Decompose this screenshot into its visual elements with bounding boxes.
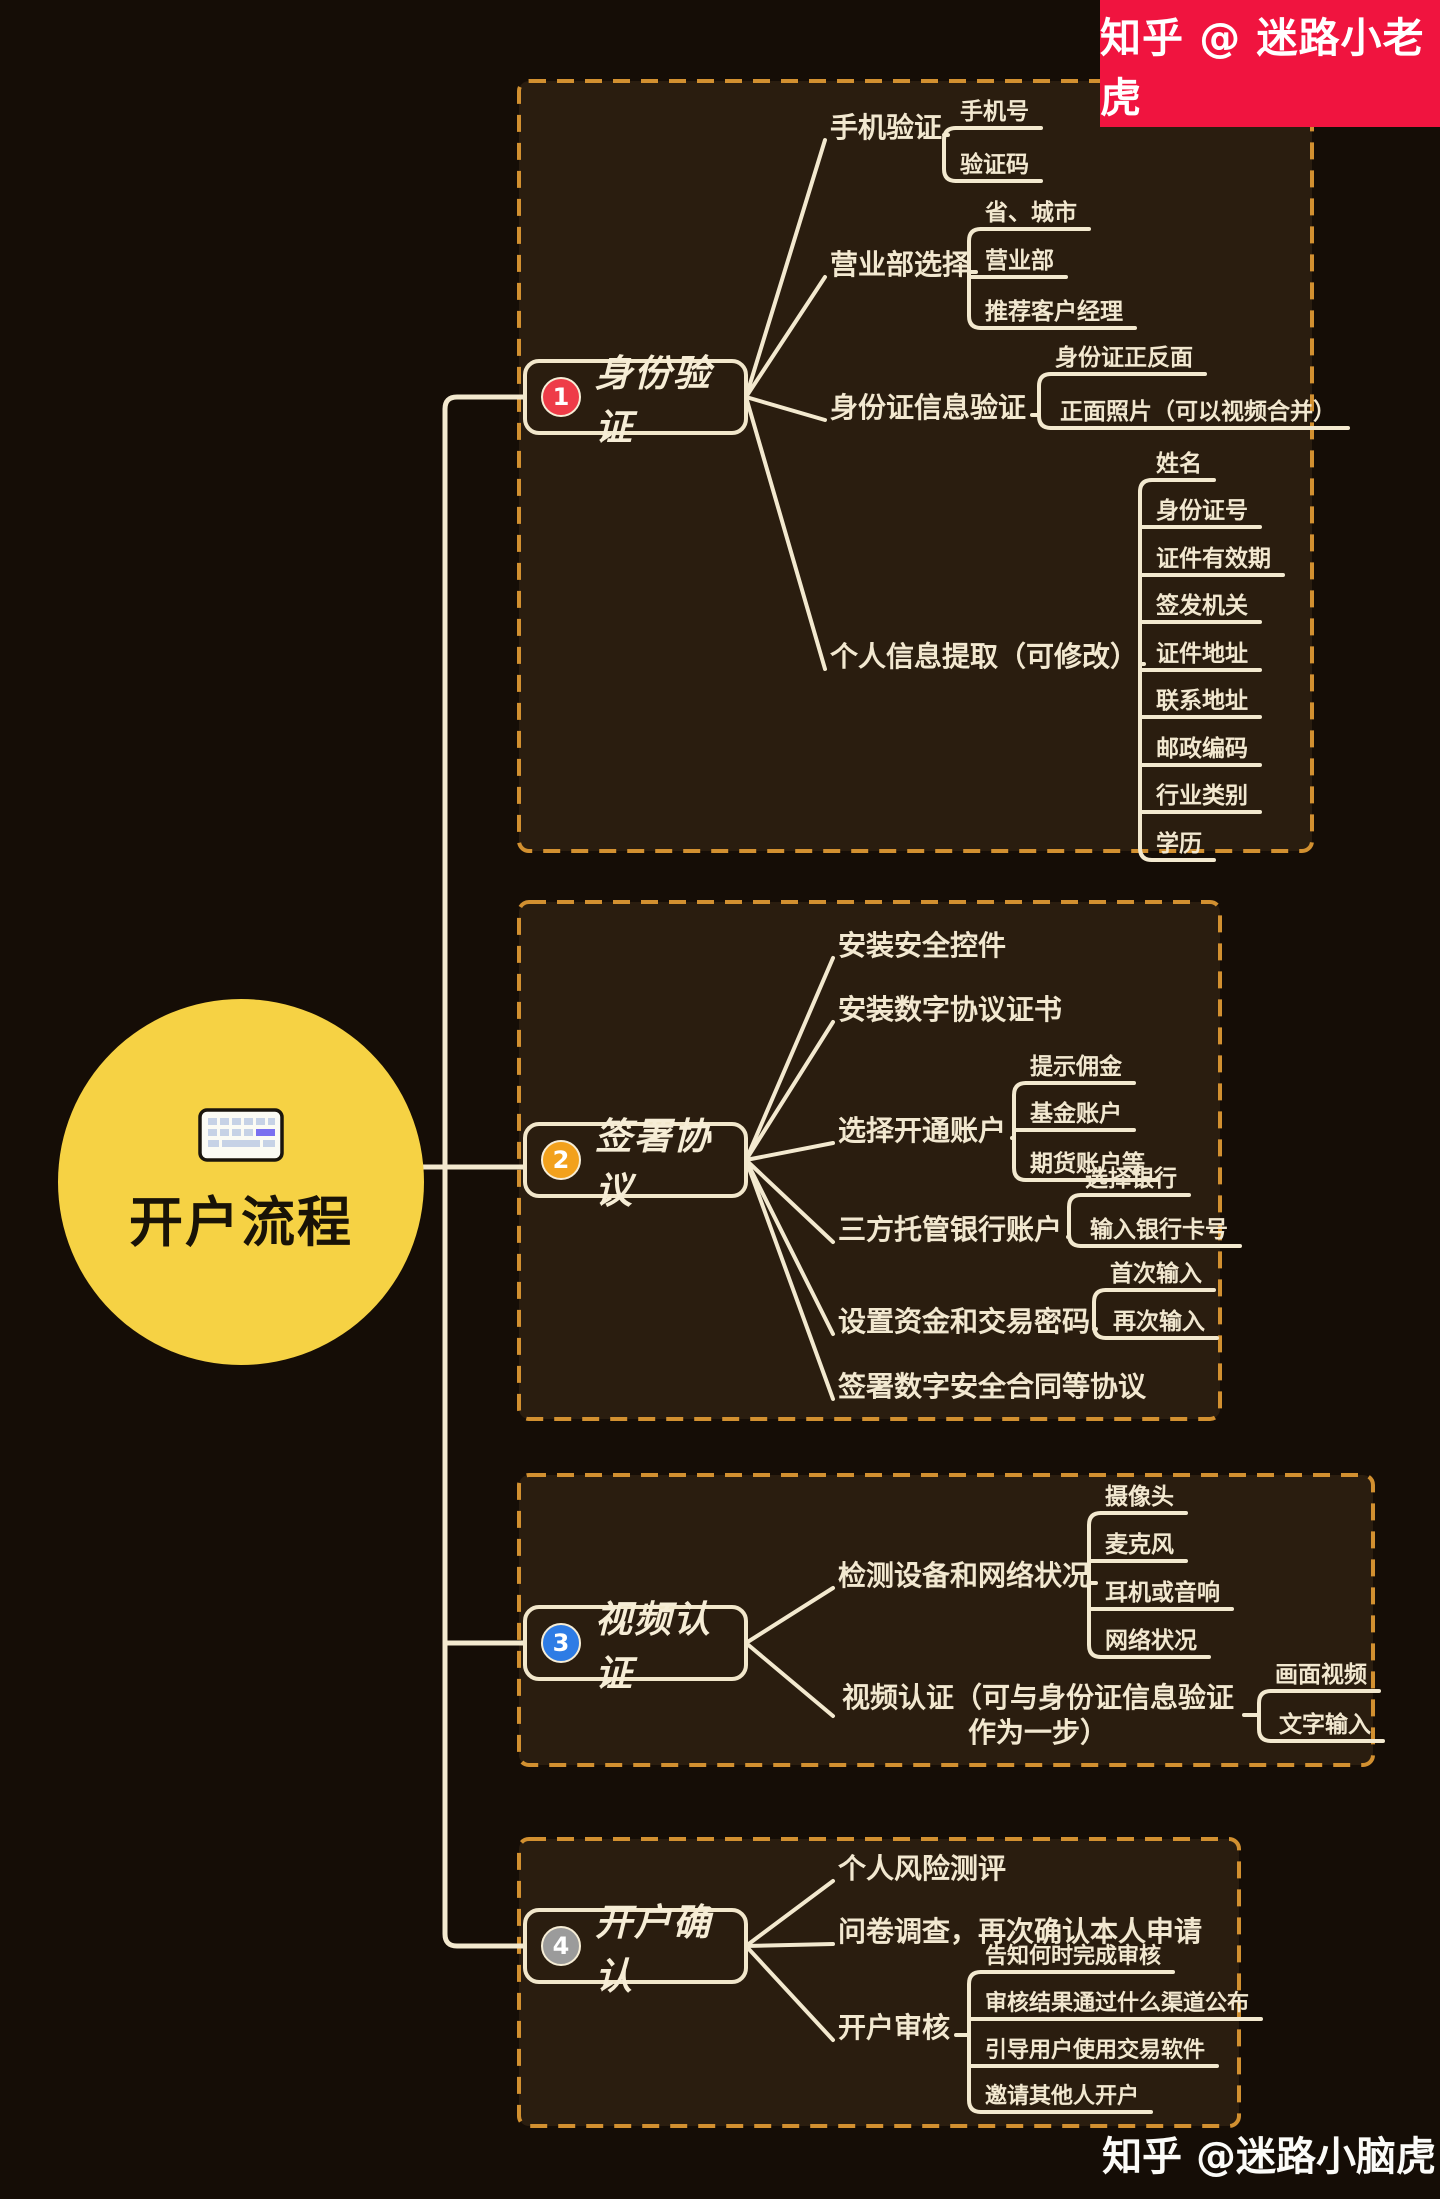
leaf-label: 行业类别 <box>1156 783 1248 809</box>
zhihu-watermark-banner: 知乎 @ 迷路小老虎 <box>1100 0 1440 127</box>
branch-number-badge: 4 <box>541 1926 581 1966</box>
branch-number-badge: 3 <box>541 1623 581 1663</box>
leaf-label: 签发机关 <box>1156 593 1248 619</box>
branch-node-2: 2 签署协议 <box>523 1122 748 1198</box>
leaf-label: 邮政编码 <box>1156 736 1248 762</box>
subtopic-label: 签署数字安全合同等协议 <box>838 1371 1146 1403</box>
subtopic-label: 检测设备和网络状况 <box>838 1560 1090 1592</box>
leaf-label: 网络状况 <box>1105 1628 1197 1654</box>
branch-number-badge: 1 <box>541 377 581 417</box>
leaf-label: 提示佣金 <box>1030 1054 1122 1080</box>
subtopic-label: 安装数字协议证书 <box>838 994 1062 1026</box>
leaf-label: 画面视频 <box>1275 1662 1367 1688</box>
subtopic-label: 选择开通账户 <box>838 1115 1006 1147</box>
subtopic-label: 视频认证（可与身份证信息验证作为一步） <box>838 1680 1238 1750</box>
subtopic-label: 个人风险测评 <box>838 1853 1006 1885</box>
leaf-label: 耳机或音响 <box>1105 1580 1220 1606</box>
leaf-label: 审核结果通过什么渠道公布 <box>985 1991 1249 2016</box>
leaf-label: 身份证正反面 <box>1055 345 1193 371</box>
leaf-label: 邀请其他人开户 <box>985 2084 1139 2109</box>
subtopic-label: 安装安全控件 <box>838 930 1006 962</box>
keyboard-icon <box>198 1108 284 1162</box>
leaf-label: 省、城市 <box>985 200 1077 226</box>
branch-number-badge: 2 <box>541 1140 581 1180</box>
leaf-label: 再次输入 <box>1113 1309 1205 1335</box>
leaf-label: 证件有效期 <box>1156 546 1271 572</box>
central-title: 开户流程 <box>129 1178 353 1257</box>
leaf-label: 输入银行卡号 <box>1090 1217 1228 1243</box>
subtopic-label: 三方托管银行账户 <box>838 1214 1062 1246</box>
branch-title: 签署协议 <box>595 1106 744 1214</box>
purple-key <box>256 1129 275 1136</box>
leaf-label: 基金账户 <box>1030 1101 1122 1127</box>
leaf-label: 姓名 <box>1156 451 1202 477</box>
leaf-label: 摄像头 <box>1105 1484 1174 1510</box>
leaf-label: 告知何时完成审核 <box>985 1944 1161 1969</box>
leaf-label: 麦克风 <box>1105 1532 1174 1558</box>
branch-node-3: 3 视频认证 <box>523 1605 748 1681</box>
banner-text: 知乎 @ 迷路小老虎 <box>1100 4 1440 124</box>
subtopic-label: 个人信息提取（可修改） <box>830 641 1138 673</box>
leaf-label: 引导用户使用交易软件 <box>985 2038 1205 2063</box>
leaf-label: 推荐客户经理 <box>985 299 1123 325</box>
subtopic-label: 手机验证 <box>830 112 942 144</box>
leaf-label: 选择银行 <box>1085 1166 1177 1192</box>
subtopic-label: 设置资金和交易密码 <box>838 1306 1090 1338</box>
subtopic-label: 开户审核 <box>838 2012 950 2044</box>
subtopic-label: 营业部选择 <box>830 249 970 281</box>
leaf-label: 营业部 <box>985 248 1054 274</box>
branch-title: 开户确认 <box>595 1892 744 2000</box>
leaf-label: 身份证号 <box>1156 498 1248 524</box>
leaf-label: 联系地址 <box>1156 688 1248 714</box>
footer-watermark: 知乎 @迷路小脑虎 <box>1040 2124 1436 2182</box>
leaf-label: 文字输入 <box>1279 1712 1371 1738</box>
subtopic-label: 身份证信息验证 <box>830 392 1026 424</box>
leaf-label: 验证码 <box>960 152 1029 178</box>
central-topic: 开户流程 <box>58 999 424 1365</box>
branch-node-1: 1 身份验证 <box>523 359 748 435</box>
leaf-label: 手机号 <box>960 99 1029 125</box>
branch-node-4: 4 开户确认 <box>523 1908 748 1984</box>
leaf-label: 首次输入 <box>1110 1261 1202 1287</box>
leaf-label: 证件地址 <box>1156 641 1248 667</box>
branch-title: 视频认证 <box>595 1589 744 1697</box>
leaf-label: 学历 <box>1156 831 1202 857</box>
mindmap-canvas: 知乎 @ 迷路小老虎 开户流程 1 身份验证 2 签署协议 3 视频认证 <box>0 0 1440 2199</box>
branch-title: 身份验证 <box>595 343 744 451</box>
leaf-label: 正面照片（可以视频合并） <box>1060 399 1336 425</box>
